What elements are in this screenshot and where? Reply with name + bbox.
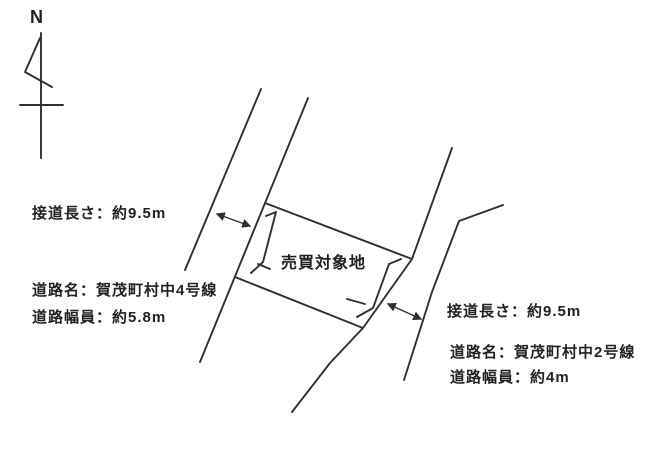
- left-road-width-label: 道路幅員：約5.8m: [32, 309, 166, 327]
- right-road-frontage-label: 接道長さ：約9.5m: [447, 303, 581, 321]
- north-arrow-icon: [20, 33, 63, 158]
- site-plan-diagram: N 売買対象地 接道長さ：約9.5m 道路名：賀茂町村中4号線 道路幅員：約5.…: [0, 0, 665, 465]
- site-plan-drawing: [0, 0, 665, 465]
- parcel-top-edge: [265, 203, 412, 259]
- right-frontage-bracket-tick: [347, 299, 365, 304]
- right-road-width-label: 道路幅員：約4m: [450, 369, 570, 387]
- right-road-name-label: 道路名：賀茂町村中2号線: [450, 344, 635, 362]
- left-frontage-bracket: [251, 212, 276, 273]
- left-frontage-bracket-line: [251, 212, 276, 273]
- north-arrow-pennant: [25, 38, 52, 87]
- left-road-name-label: 道路名：賀茂町村中4号線: [32, 282, 217, 300]
- parcel-bottom-edge: [235, 277, 363, 328]
- right-road-width-arrow: [388, 304, 421, 319]
- left-road-inner-edge: [200, 98, 308, 362]
- left-frontage-bracket-tick: [258, 264, 270, 269]
- right-road-left-edge: [292, 148, 452, 412]
- left-road-frontage-label: 接道長さ：約9.5m: [32, 205, 166, 223]
- left-road-width-arrow: [217, 214, 250, 226]
- north-label: N: [30, 8, 43, 26]
- parcel-label: 売買対象地: [281, 255, 366, 273]
